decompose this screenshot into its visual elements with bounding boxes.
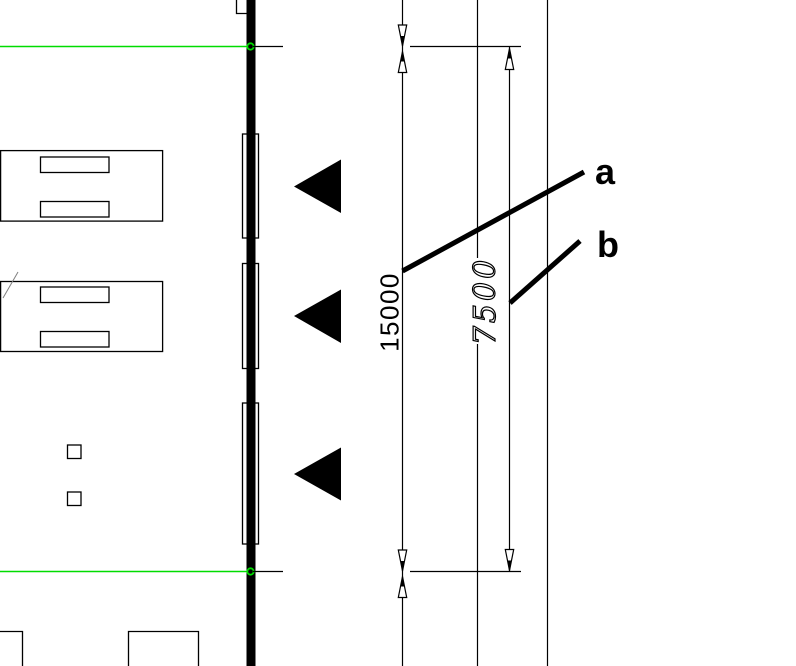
cad-drawing-surface: 15000 7500 a b [0,0,796,666]
annotation-label-b: b [597,224,619,265]
annotation-label-a: a [595,151,616,192]
dimension-text-15000: 15000 [375,272,405,352]
wall-line [247,0,256,666]
dimension-text-7500: 7500 [468,257,503,345]
cad-plan-view: 15000 7500 a b [0,0,796,666]
